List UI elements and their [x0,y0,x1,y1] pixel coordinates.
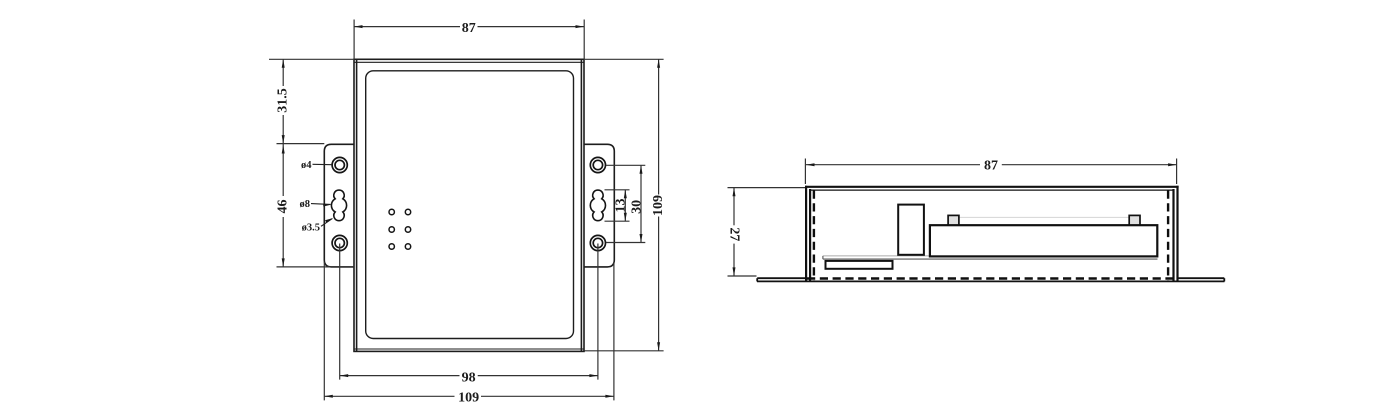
svg-text:87: 87 [984,159,998,174]
svg-text:109: 109 [458,391,479,406]
svg-text:ø4: ø4 [301,160,312,171]
svg-text:109: 109 [651,195,666,216]
svg-text:46: 46 [275,200,290,214]
svg-text:ø3.5: ø3.5 [302,222,320,233]
svg-text:30: 30 [630,200,645,214]
svg-text:87: 87 [462,21,476,36]
svg-text:ø8: ø8 [300,199,311,210]
svg-text:31.5: 31.5 [275,88,290,113]
svg-text:98: 98 [462,370,476,385]
svg-text:13: 13 [614,199,629,213]
svg-text:27: 27 [726,227,741,241]
